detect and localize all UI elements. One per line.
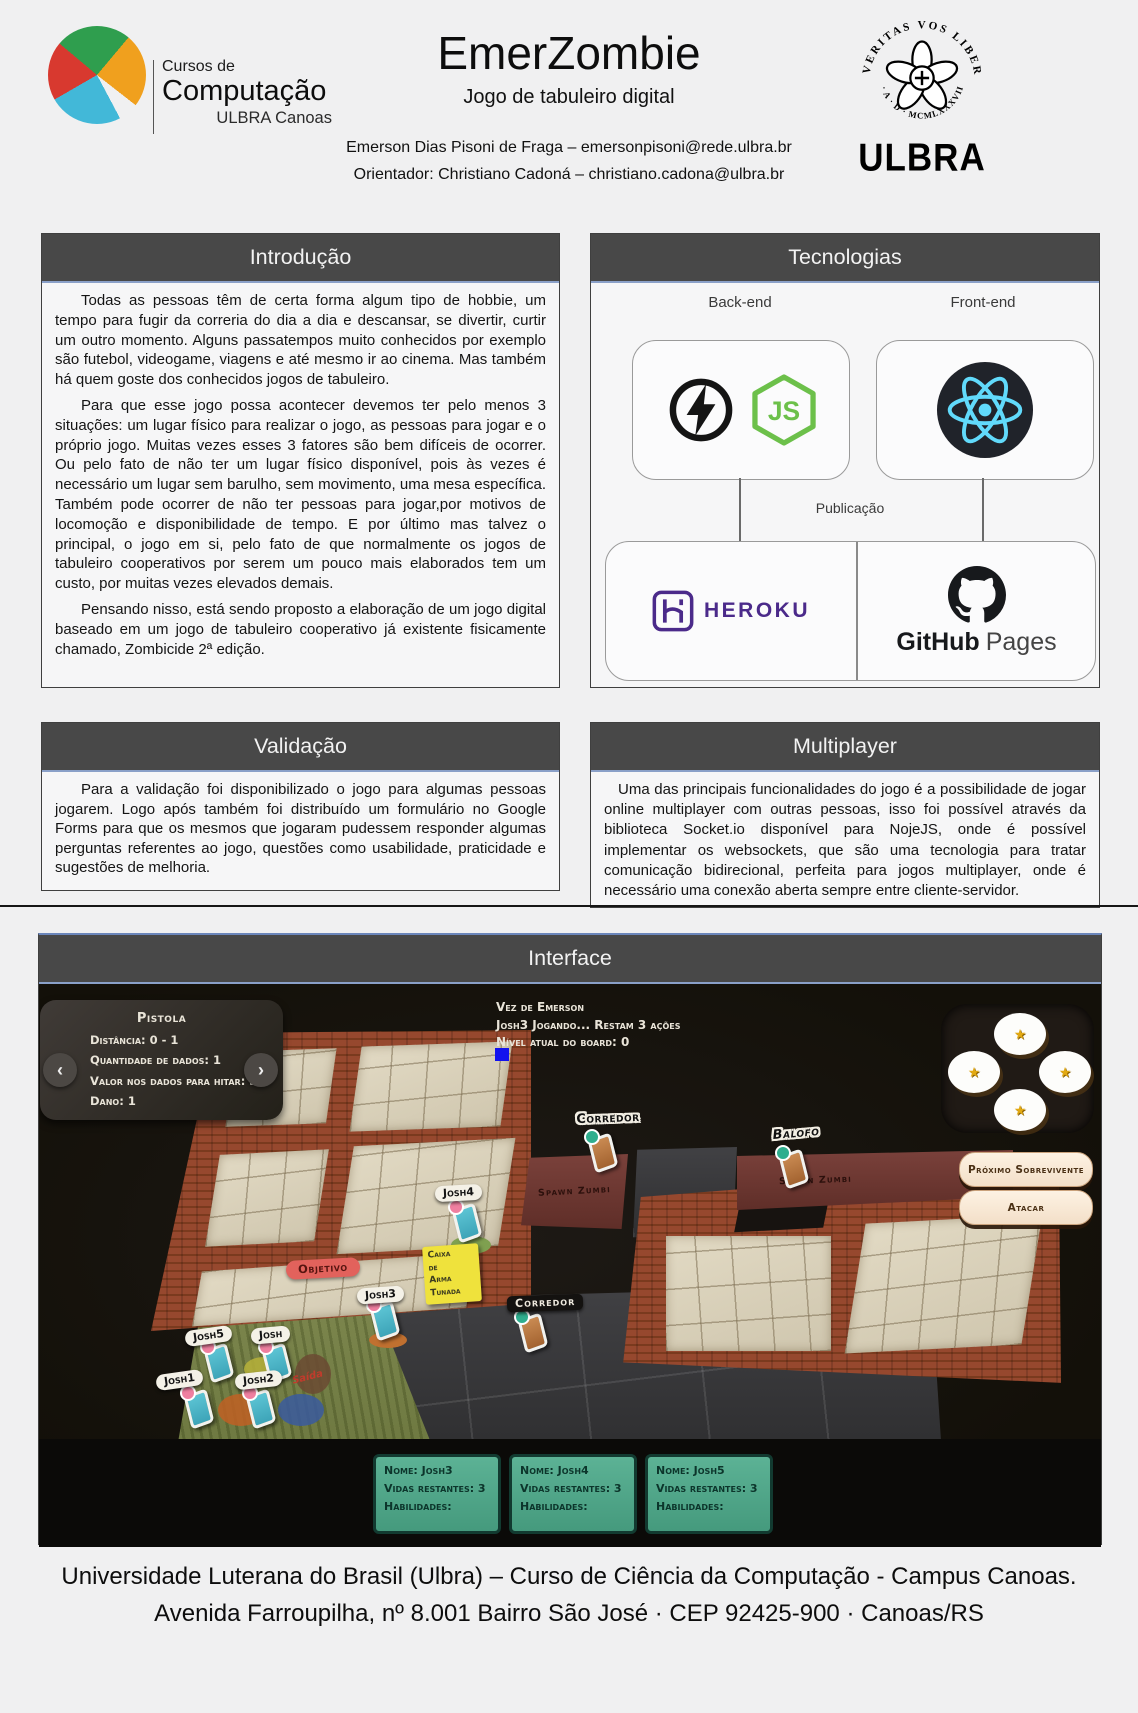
die[interactable]: ★ xyxy=(994,1013,1046,1055)
validacao-paragraph: Para a validação foi disponibilizado o j… xyxy=(55,780,546,878)
room xyxy=(337,1138,516,1254)
weapon-next-button[interactable]: › xyxy=(244,1053,278,1087)
multiplayer-paragraph: Uma das principais funcionalidades do jo… xyxy=(604,780,1086,901)
weapon-stat-distancia: Distância: 0 - 1 xyxy=(90,1033,283,1047)
status-line-level: Nível atual do board: 0 xyxy=(496,1034,681,1052)
section-introducao: Introdução Todas as pessoas têm de certa… xyxy=(41,233,560,688)
selected-tile-marker xyxy=(495,1048,509,1061)
player-card-skills: Habilidades: xyxy=(520,1500,626,1513)
survivor-token-josh4[interactable] xyxy=(455,1206,479,1240)
footer: Universidade Luterana do Brasil (Ulbra) … xyxy=(0,1558,1138,1632)
survivor-token-josh2[interactable] xyxy=(249,1392,273,1426)
publish-box: HEROKU GitHubPages xyxy=(605,541,1096,681)
section-introducao-title: Introdução xyxy=(42,234,559,283)
player-card-josh5: Nome: Josh5 Vidas restantes: 3 Habilidad… xyxy=(645,1454,773,1534)
weapon-stat-dano: Dano: 1 xyxy=(90,1094,283,1108)
spawn-zumbi-label: Spawn Zumbi xyxy=(538,1184,611,1199)
section-interface: Interface Saída Spawn Zumbi xyxy=(38,933,1102,1545)
player-card-skills: Habilidades: xyxy=(656,1500,762,1513)
player-card-name: Nome: Josh4 xyxy=(520,1464,626,1477)
github-icon xyxy=(948,566,1006,624)
zombie-token[interactable] xyxy=(591,1136,615,1170)
weapon-prev-button[interactable]: ‹ xyxy=(43,1053,77,1087)
section-validacao-body: Para a validação foi disponibilizado o j… xyxy=(42,772,559,890)
github-text: GitHub xyxy=(896,628,979,656)
section-multiplayer-title: Multiplayer xyxy=(591,723,1099,772)
backend-box: JS xyxy=(632,340,850,480)
section-interface-title: Interface xyxy=(39,935,1101,984)
player-card-josh4: Nome: Josh4 Vidas restantes: 3 Habilidad… xyxy=(509,1454,637,1534)
balofo-label: Balofo xyxy=(746,1122,847,1146)
section-multiplayer: Multiplayer Uma das principais funcional… xyxy=(590,722,1100,908)
publicacao-label: Publicação xyxy=(780,500,920,516)
section-validacao-title: Validação xyxy=(42,723,559,772)
token-label-josh4: Josh4 xyxy=(435,1184,483,1202)
player-card-name: Nome: Josh5 xyxy=(656,1464,762,1477)
room xyxy=(845,1215,1042,1354)
nodejs-icon: JS xyxy=(751,370,817,450)
survivor-token-josh3[interactable] xyxy=(373,1304,397,1338)
section-introducao-body: Todas as pessoas têm de certa forma algu… xyxy=(42,283,559,671)
status-line-actions: Josh3 Jogando... Restam 3 ações xyxy=(496,1017,681,1035)
backend-label: Back-end xyxy=(670,294,810,311)
token-label-josh3: Josh3 xyxy=(356,1285,404,1304)
intro-paragraph: Para que esse jogo possa acontecer devem… xyxy=(55,396,546,594)
weapon-name: Pistola xyxy=(40,1011,283,1026)
github-pages-text: Pages xyxy=(986,628,1057,656)
connector-right xyxy=(982,478,984,541)
status-line-turn: Vez de Emerson xyxy=(496,999,681,1017)
section-tecnologias: Tecnologias Back-end Front-end JS xyxy=(590,233,1100,688)
poster: Cursos de Computação ULBRA Canoas EmerZo… xyxy=(0,0,1138,1713)
footer-line1: Universidade Luterana do Brasil (Ulbra) … xyxy=(0,1558,1138,1595)
survivor-token-josh1[interactable] xyxy=(187,1392,211,1426)
objetivo-badge: Objetivo xyxy=(286,1257,361,1280)
frontend-box xyxy=(876,340,1094,480)
github-pages-logo: GitHubPages xyxy=(858,542,1095,680)
die[interactable]: ★ xyxy=(1039,1051,1091,1093)
attack-button[interactable]: Atacar xyxy=(959,1190,1093,1225)
zombie-token[interactable] xyxy=(521,1316,545,1350)
socketio-icon xyxy=(665,374,737,446)
section-multiplayer-body: Uma das principais funcionalidades do jo… xyxy=(591,772,1099,907)
player-card-lives: Vidas restantes: 3 xyxy=(384,1482,490,1495)
footer-line2: Avenida Farroupilha, nº 8.001 Bairro São… xyxy=(0,1595,1138,1632)
player-card-lives: Vidas restantes: 3 xyxy=(656,1482,762,1495)
nodejs-js-text: JS xyxy=(768,396,800,426)
room xyxy=(350,1041,513,1131)
react-icon xyxy=(936,361,1034,459)
player-card-skills: Habilidades: xyxy=(384,1500,490,1513)
survivor-token-josh5[interactable] xyxy=(207,1346,231,1380)
logo-line3: ULBRA Canoas xyxy=(162,109,332,128)
heroku-text: HEROKU xyxy=(704,599,810,623)
die[interactable]: ★ xyxy=(994,1089,1046,1131)
player-card-name: Nome: Josh3 xyxy=(384,1464,490,1477)
intro-paragraph: Pensando nisso, está sendo proposto a el… xyxy=(55,600,546,659)
ulbra-seal-icon: VERITAS VOS LIBERABIT · A · D · MCMLXXXV… xyxy=(856,10,988,147)
turn-status: Vez de Emerson Josh3 Jogando... Restam 3… xyxy=(496,999,681,1052)
heroku-icon xyxy=(652,590,694,632)
heroku-logo: HEROKU xyxy=(606,542,856,680)
room xyxy=(666,1236,831,1351)
intro-paragraph: Todas as pessoas têm de certa forma algu… xyxy=(55,291,546,390)
caixa-arma-note: Caixa de Arma Tunada xyxy=(422,1243,482,1305)
next-survivor-button[interactable]: Próximo Sobrevivente xyxy=(959,1152,1093,1187)
ulbra-wordmark: ULBRA xyxy=(856,136,988,181)
connector-left xyxy=(739,478,741,541)
frontend-label: Front-end xyxy=(913,294,1053,311)
corredor-top-label: Corredor xyxy=(558,1109,658,1127)
section-validacao: Validação Para a validação foi disponibi… xyxy=(41,722,560,891)
horizontal-divider xyxy=(0,905,1138,907)
grass-spot xyxy=(278,1394,324,1426)
room xyxy=(205,1149,329,1247)
game-screenshot: Saída Spawn Zumbi Spawn Zumbi xyxy=(39,984,1101,1547)
player-card-josh3: Nome: Josh3 Vidas restantes: 3 Habilidad… xyxy=(373,1454,501,1534)
zombie-token[interactable] xyxy=(782,1152,806,1186)
section-tecnologias-title: Tecnologias xyxy=(591,234,1099,283)
die[interactable]: ★ xyxy=(948,1051,1000,1093)
player-card-lives: Vidas restantes: 3 xyxy=(520,1482,626,1495)
corredor-center-label: Corredor xyxy=(507,1294,584,1313)
